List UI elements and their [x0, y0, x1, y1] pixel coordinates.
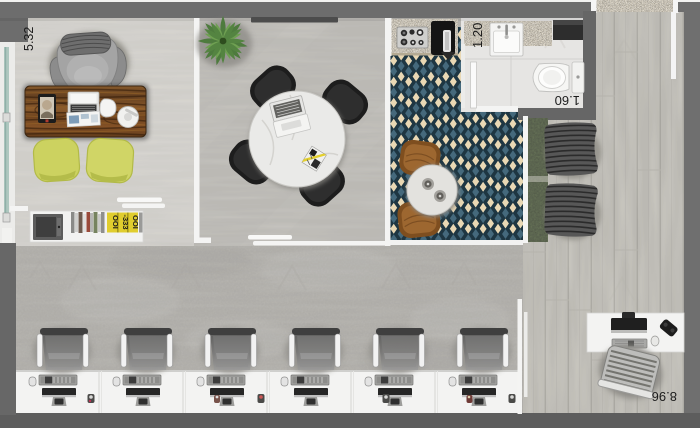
svg-text:OOI: OOI — [131, 215, 140, 229]
svg-text:-333: -333 — [121, 214, 130, 229]
svg-text:8.96: 8.96 — [652, 389, 677, 404]
svg-text:1.60: 1.60 — [555, 93, 580, 108]
svg-text:1.20: 1.20 — [470, 23, 485, 48]
svg-text:OOI: OOI — [111, 215, 120, 229]
svg-text:5.32: 5.32 — [22, 27, 36, 51]
